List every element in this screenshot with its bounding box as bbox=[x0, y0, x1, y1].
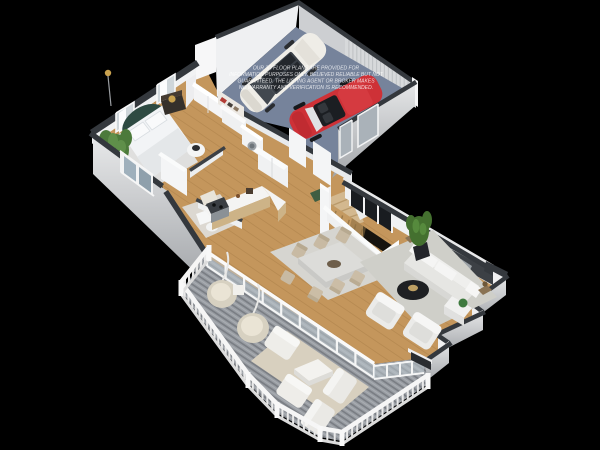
svg-text:NO WARRANTY AND VERIFICATION I: NO WARRANTY AND VERIFICATION IS RECOMMEN… bbox=[239, 85, 373, 91]
svg-text:INFORMATION PURPOSES ONLY. BEL: INFORMATION PURPOSES ONLY. BELIEVED RELI… bbox=[229, 72, 384, 78]
svg-text:GUARANTEED. THE LISTING AGENT: GUARANTEED. THE LISTING AGENT OR BROKER … bbox=[237, 79, 375, 85]
svg-text:OUR 3D FLOOR PLANS ARE PROVIDE: OUR 3D FLOOR PLANS ARE PROVIDED FOR bbox=[253, 66, 360, 72]
